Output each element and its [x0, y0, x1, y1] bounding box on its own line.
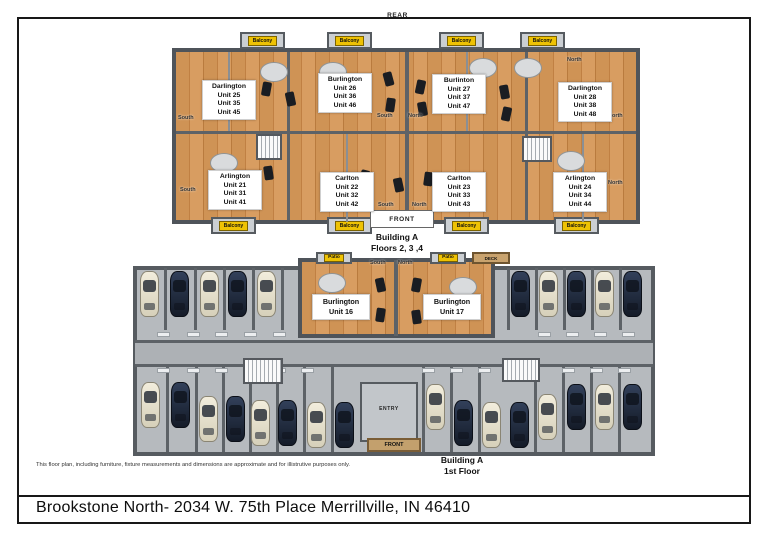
storage-chip — [478, 368, 491, 373]
direction-label: North — [608, 180, 623, 186]
unit-label-line: Unit 34 — [555, 192, 605, 201]
storage-chip — [187, 332, 200, 337]
balcony: Balcony — [444, 217, 489, 234]
garage-divider — [166, 366, 169, 452]
balcony: Balcony — [439, 32, 484, 49]
garage-divider — [194, 268, 197, 330]
direction-label: North — [398, 260, 413, 266]
stairwell — [502, 358, 540, 382]
patio: Patio — [316, 252, 352, 264]
balcony-label: Balcony — [528, 36, 557, 46]
storage-chip — [566, 332, 579, 337]
storage-chip — [622, 332, 635, 337]
unit-label-line: Unit 21 — [210, 182, 260, 191]
unit-label-line: Unit 36 — [320, 93, 370, 102]
sofa — [375, 307, 386, 322]
storage-chip — [562, 368, 575, 373]
balcony-label: Balcony — [335, 221, 364, 231]
sofa — [385, 97, 396, 112]
garage-divider — [222, 366, 225, 452]
direction-label: North — [412, 202, 427, 208]
storage-chip — [157, 368, 170, 373]
unit-label-line: Darlington — [204, 83, 254, 92]
unit-label-line: Darlington — [560, 85, 610, 94]
unit-label-line: Burlington — [425, 297, 479, 307]
storage-chip — [187, 368, 200, 373]
car — [251, 400, 270, 446]
unit-label-line: Unit 23 — [434, 184, 484, 193]
unit-label-line: Carlton — [322, 175, 372, 184]
unit-label-line: Unit 46 — [320, 102, 370, 111]
direction-label: South — [180, 187, 196, 193]
unit-label: CarltonUnit 22Unit 32Unit 42 — [320, 172, 374, 212]
unit-label-line: Unit 26 — [320, 85, 370, 94]
garage-divider — [422, 366, 425, 452]
car — [510, 402, 529, 448]
car — [623, 384, 642, 430]
dining-table — [318, 273, 346, 293]
car — [200, 271, 219, 317]
garage-divider — [331, 366, 334, 452]
garage-divider — [618, 366, 621, 452]
caption-line: 1st Floor — [412, 466, 512, 477]
car — [141, 382, 160, 428]
unit-label: BurlintonUnit 27Unit 37Unit 47 — [432, 74, 486, 114]
garage-divider — [619, 268, 622, 330]
balcony: Balcony — [327, 32, 372, 49]
deck-label: DECK — [485, 256, 498, 261]
storage-chip — [215, 332, 228, 337]
garage-divider — [535, 268, 538, 330]
unit-label-line: Unit 22 — [322, 184, 372, 193]
balcony: Balcony — [327, 217, 372, 234]
garage-wall — [135, 340, 653, 343]
stairwell — [522, 136, 552, 162]
car — [539, 271, 558, 317]
stairwell — [243, 358, 283, 384]
storage-chip — [301, 368, 314, 373]
garage-divider — [303, 366, 306, 452]
garage-divider — [252, 268, 255, 330]
storage-chip — [590, 368, 603, 373]
car — [454, 400, 473, 446]
unit-label-line: Unit 25 — [204, 92, 254, 101]
unit-label: BurlingtonUnit 17 — [423, 294, 481, 320]
entry-label: ENTRY — [379, 406, 399, 412]
interior-wall — [287, 52, 290, 220]
car — [278, 400, 297, 446]
garage-divider — [281, 268, 284, 330]
garage-divider — [478, 366, 481, 452]
unit-label-line: Carlton — [434, 175, 484, 184]
building-caption-upper: Building A Floors 2, 3 ,4 — [347, 232, 447, 254]
car — [226, 396, 245, 442]
unit-label-line: Burlington — [314, 297, 368, 307]
unit-label-line: Unit 16 — [314, 307, 368, 317]
entry-room: ENTRY — [360, 382, 418, 442]
balcony-label: Balcony — [219, 221, 248, 231]
unit-label-line: Arlington — [210, 173, 260, 182]
storage-chip — [538, 332, 551, 337]
car — [335, 402, 354, 448]
garage-divider — [223, 268, 226, 330]
unit-label-line: Unit 32 — [322, 192, 372, 201]
sofa — [263, 165, 274, 180]
direction-label: North — [408, 113, 423, 119]
car — [567, 384, 586, 430]
direction-label: South — [370, 260, 386, 266]
patio-label: Patio — [324, 254, 344, 262]
car — [595, 384, 614, 430]
unit-label: ArlingtonUnit 21Unit 31Unit 41 — [208, 170, 262, 210]
front-label-lower: FRONT — [367, 438, 421, 452]
garage-divider — [507, 268, 510, 330]
balcony-label: Balcony — [452, 221, 481, 231]
unit-label-line: Unit 35 — [204, 100, 254, 109]
unit-label: BurlingtonUnit 16 — [312, 294, 370, 320]
unit-label-line: Unit 41 — [210, 199, 260, 208]
unit-label-line: Unit 47 — [434, 103, 484, 112]
car — [623, 271, 642, 317]
garage-wall — [135, 364, 653, 367]
car — [257, 271, 276, 317]
page: REAR FRONT BalconyBalconyBalconyBalconyB… — [0, 0, 768, 543]
direction-label: South — [378, 202, 394, 208]
unit-label-line: Unit 44 — [555, 201, 605, 210]
car — [595, 271, 614, 317]
storage-chip — [273, 332, 286, 337]
unit-label: CarltonUnit 23Unit 33Unit 43 — [432, 172, 486, 212]
driveway — [135, 342, 653, 366]
car — [511, 271, 530, 317]
garage-divider — [195, 366, 198, 452]
car — [228, 271, 247, 317]
car — [171, 382, 190, 428]
car — [567, 271, 586, 317]
patio-label: Patio — [438, 254, 458, 262]
car — [482, 402, 501, 448]
unit-label-line: Unit 43 — [434, 201, 484, 210]
direction-label: South — [178, 115, 194, 121]
deck-tab: DECK — [472, 252, 510, 264]
unit-label-line: Unit 38 — [560, 102, 610, 111]
building-caption-lower: Building A 1st Floor — [412, 455, 512, 477]
storage-chip — [244, 332, 257, 337]
garage-divider — [164, 268, 167, 330]
garage-divider — [450, 366, 453, 452]
dining-table — [557, 151, 585, 171]
garage-divider — [562, 366, 565, 452]
lower-plan: DECK ENTRY FRONT PatioPatioSouthNorthBur… — [130, 252, 662, 464]
party-wall — [405, 52, 409, 220]
garage-divider — [563, 268, 566, 330]
unit-label-line: Unit 24 — [555, 184, 605, 193]
caption-line: Building A — [412, 455, 512, 466]
balcony: Balcony — [520, 32, 565, 49]
unit-label-line: Unit 37 — [434, 94, 484, 103]
balcony-label: Balcony — [562, 221, 591, 231]
front-label-text: FRONT — [385, 442, 404, 448]
storage-chip — [594, 332, 607, 337]
direction-label: North — [567, 57, 582, 63]
rear-label: REAR — [360, 12, 435, 19]
storage-chip — [450, 368, 463, 373]
unit-label: BurlingtonUnit 26Unit 36Unit 46 — [318, 73, 372, 113]
footer-divider — [19, 495, 749, 497]
balcony: Balcony — [211, 217, 256, 234]
footer-title: Brookstone North- 2034 W. 75th Place Mer… — [36, 499, 470, 517]
disclaimer-text: This floor plan, including furniture, fi… — [36, 462, 350, 468]
unit-label-line: Unit 27 — [434, 86, 484, 95]
sofa — [411, 309, 422, 324]
balcony-label: Balcony — [335, 36, 364, 46]
unit-label-line: Unit 48 — [560, 111, 610, 120]
patio: Patio — [430, 252, 466, 264]
unit-label-line: Unit 45 — [204, 109, 254, 118]
storage-chip — [422, 368, 435, 373]
unit-label-line: Burlington — [320, 76, 370, 85]
storage-chip — [618, 368, 631, 373]
front-label-text: FRONT — [389, 216, 414, 223]
storage-chip — [215, 368, 228, 373]
unit-label: ArlingtonUnit 24Unit 34Unit 44 — [553, 172, 607, 212]
balcony-label: Balcony — [447, 36, 476, 46]
unit-label-line: Burlinton — [434, 77, 484, 86]
unit-label-line: Unit 17 — [425, 307, 479, 317]
unit-label: DarlingtonUnit 25Unit 35Unit 45 — [202, 80, 256, 120]
car — [140, 271, 159, 317]
car — [170, 271, 189, 317]
front-label-upper: FRONT — [370, 210, 434, 228]
car — [426, 384, 445, 430]
unit-label-line: Arlington — [555, 175, 605, 184]
garage-divider — [591, 268, 594, 330]
stairwell — [256, 134, 282, 160]
balcony: Balcony — [554, 217, 599, 234]
party-wall — [394, 260, 398, 336]
corridor-wall — [176, 131, 636, 134]
car — [307, 402, 326, 448]
car — [538, 394, 557, 440]
unit-label-line: Unit 31 — [210, 190, 260, 199]
car — [199, 396, 218, 442]
unit-label-line: Unit 42 — [322, 201, 372, 210]
upper-plan: FRONT BalconyBalconyBalconyBalconyBalcon… — [170, 30, 647, 236]
balcony: Balcony — [240, 32, 285, 49]
storage-chip — [157, 332, 170, 337]
dining-table — [260, 62, 288, 82]
dining-table — [514, 58, 542, 78]
direction-label: South — [377, 113, 393, 119]
unit-label-line: Unit 28 — [560, 94, 610, 103]
unit-label: DarlingtonUnit 28Unit 38Unit 48 — [558, 82, 612, 122]
garage-divider — [590, 366, 593, 452]
balcony-label: Balcony — [248, 36, 277, 46]
unit-label-line: Unit 33 — [434, 192, 484, 201]
